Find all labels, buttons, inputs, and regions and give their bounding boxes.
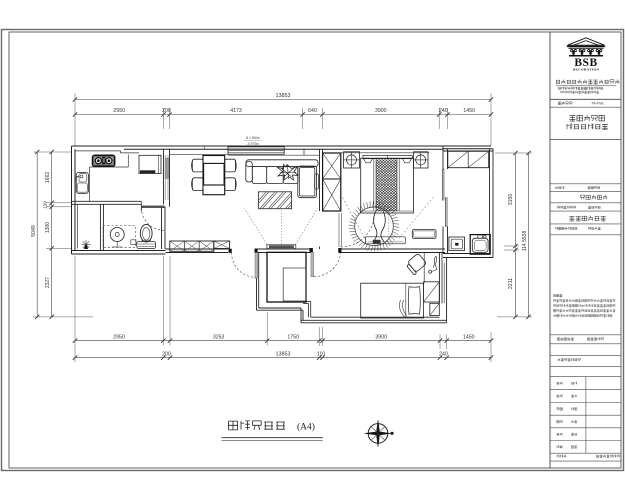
svg-text:(A4): (A4) (297, 421, 315, 432)
svg-text:4173: 4173 (230, 108, 242, 114)
svg-text:200: 200 (162, 108, 171, 114)
svg-text:B 1.650m: B 1.650m (246, 136, 261, 140)
svg-text:3900: 3900 (375, 108, 387, 114)
svg-text:3900: 3900 (375, 334, 387, 340)
svg-text:2211: 2211 (508, 278, 514, 289)
svg-text:3150: 3150 (508, 194, 514, 206)
svg-text:DECORATION: DECORATION (573, 67, 600, 71)
svg-text:2950: 2950 (113, 108, 125, 114)
svg-text:240: 240 (439, 108, 448, 114)
svg-text:110: 110 (317, 351, 325, 357)
svg-text:2950: 2950 (113, 334, 125, 340)
svg-text:640: 640 (308, 108, 317, 114)
svg-text:1450: 1450 (463, 108, 475, 114)
svg-text:200: 200 (162, 351, 171, 357)
svg-text:-0.975m: -0.975m (247, 142, 260, 146)
svg-text:1300: 1300 (45, 222, 51, 233)
svg-text:114.5538: 114.5538 (522, 231, 528, 252)
svg-text:PA-PWL: PA-PWL (592, 102, 605, 106)
svg-text:5049: 5049 (31, 225, 37, 237)
svg-text:1750: 1750 (287, 334, 299, 340)
svg-text:3253: 3253 (213, 334, 225, 340)
svg-text:1450: 1450 (463, 334, 475, 340)
svg-text:139: 139 (43, 201, 48, 209)
svg-text:13853: 13853 (276, 351, 291, 357)
svg-text:2327: 2327 (45, 277, 51, 288)
svg-text:13853: 13853 (276, 93, 291, 99)
svg-text:240: 240 (439, 351, 448, 357)
svg-text:1662: 1662 (45, 172, 51, 183)
